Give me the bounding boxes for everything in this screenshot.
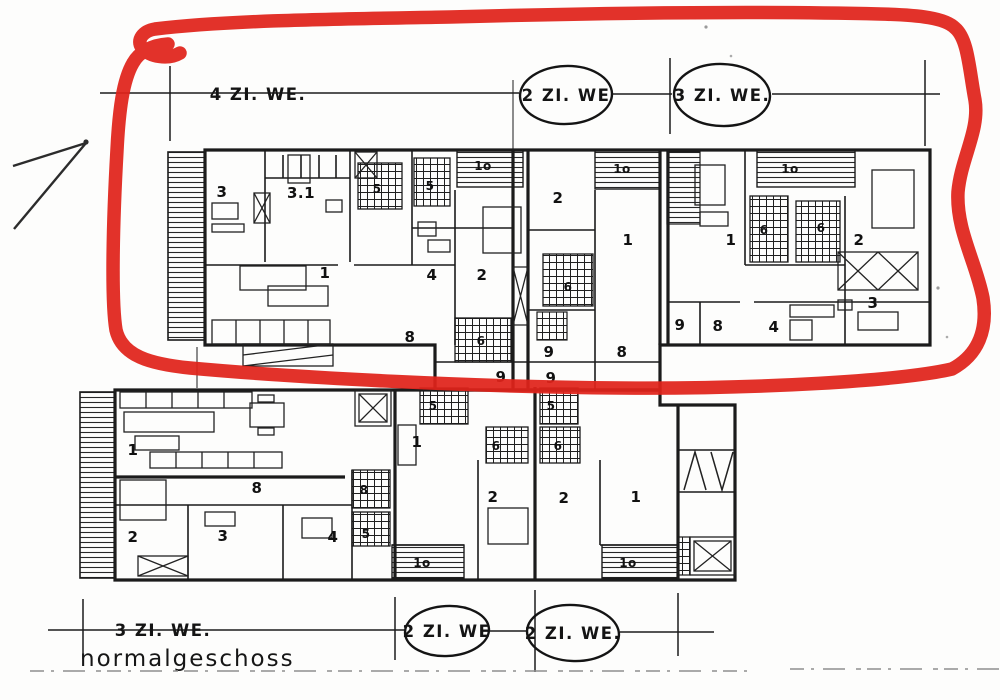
- lower-plan: 182348515621o56211o: [80, 387, 735, 580]
- room-label: 6: [554, 439, 563, 453]
- room-label: 4: [769, 318, 780, 336]
- caption-normalgeschoss: normalgeschoss: [80, 646, 295, 672]
- dim-label-bottom-middle: 2 ZI. WE: [403, 622, 492, 641]
- room-label: 6: [760, 223, 769, 237]
- room-label: 2: [559, 489, 570, 507]
- room-label: 2: [477, 266, 488, 284]
- room-label: 6: [492, 439, 501, 453]
- room-label: 5: [429, 399, 438, 413]
- dim-label-top-left: 4 ZI. WE.: [210, 85, 307, 104]
- room-label: 4: [328, 528, 339, 546]
- room-label: 8: [617, 343, 628, 361]
- floor-plan-drawing: 33.1551o1o1o14221686989998416623: [0, 0, 1000, 700]
- scan-artifacts: [30, 25, 1000, 671]
- room-label: 1o: [474, 159, 492, 173]
- room-label: 1: [320, 264, 331, 282]
- room-label: 5: [426, 179, 435, 193]
- room-label: 6: [477, 334, 486, 348]
- room-label: 1: [128, 441, 139, 459]
- room-label: 8: [713, 317, 724, 335]
- room-label: 3: [218, 527, 229, 545]
- room-label: 1o: [781, 162, 799, 176]
- room-label: 4: [427, 266, 438, 284]
- room-label: 5: [373, 182, 382, 196]
- room-label: 8: [405, 328, 416, 346]
- dim-label-top-middle: 2 ZI. WE: [522, 86, 611, 105]
- room-label: 9: [675, 316, 686, 334]
- room-label: 8: [252, 479, 263, 497]
- room-label: 2: [854, 231, 865, 249]
- room-label: 9: [544, 343, 555, 361]
- room-label: 2: [128, 528, 139, 546]
- room-label: 3: [217, 183, 228, 201]
- room-label: 1o: [613, 162, 631, 176]
- room-label: 1: [631, 488, 642, 506]
- room-label: 1o: [619, 556, 637, 570]
- room-label: 1: [623, 231, 634, 249]
- pencil-arrow: [13, 139, 89, 229]
- room-label: 1o: [413, 556, 431, 570]
- upper-plan: 33.1551o1o1o14221686989998416623: [168, 80, 930, 390]
- room-label: 6: [817, 221, 826, 235]
- room-label: 5: [547, 399, 556, 413]
- room-label: 1: [412, 433, 423, 451]
- room-label: 2: [553, 189, 564, 207]
- room-label: 8: [360, 483, 369, 497]
- room-label: 5: [362, 527, 371, 541]
- dim-label-top-right: 3 ZI. WE.: [674, 86, 771, 105]
- room-label: 3.1: [287, 184, 315, 202]
- room-label: 6: [564, 280, 573, 294]
- room-label: 3: [868, 294, 879, 312]
- room-label: 2: [488, 488, 499, 506]
- dim-label-bottom-right: 2 ZI. WE.: [525, 624, 622, 643]
- scanned-floor-plan-page: 33.1551o1o1o14221686989998416623: [0, 0, 1000, 700]
- dim-label-bottom-left: 3 ZI. WE.: [115, 621, 212, 640]
- room-label: 1: [726, 231, 737, 249]
